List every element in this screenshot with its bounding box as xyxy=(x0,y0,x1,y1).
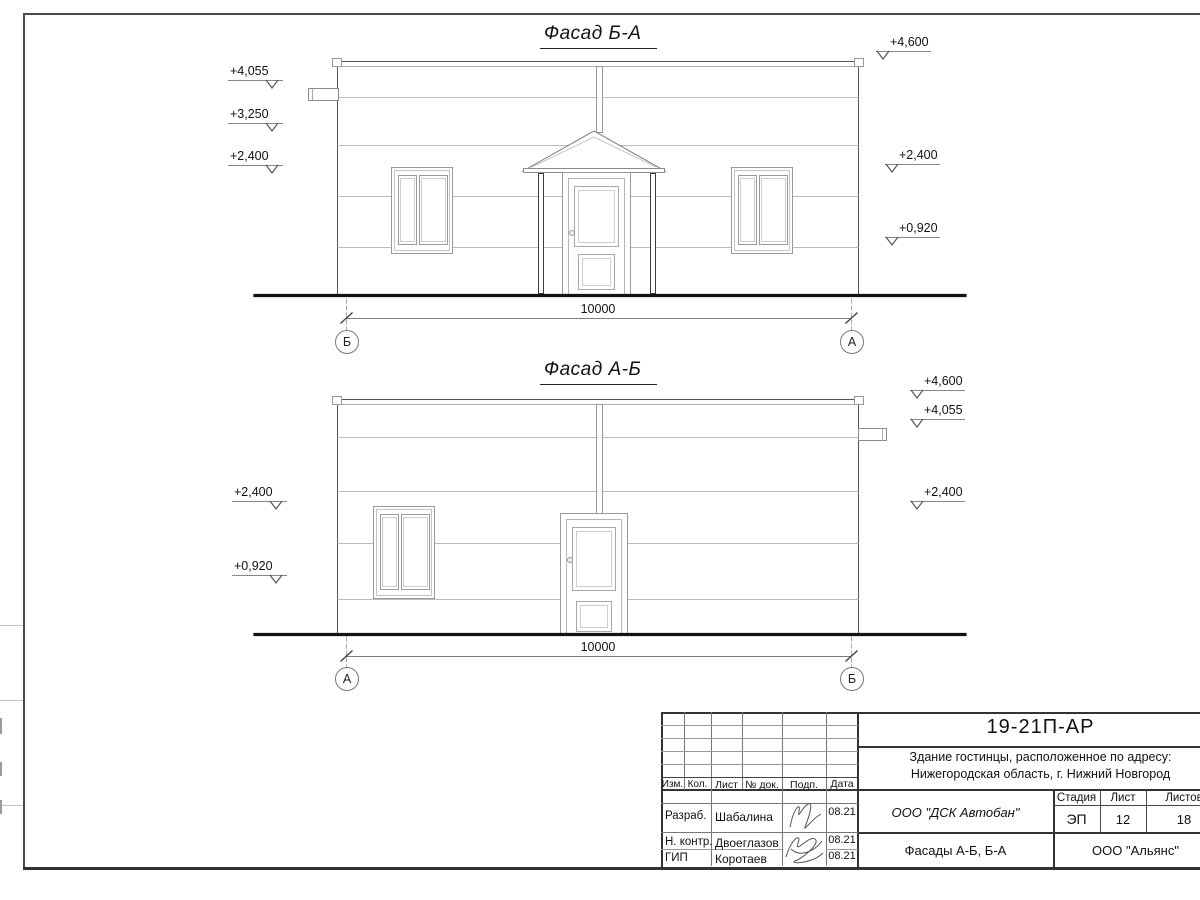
title-block-row-line xyxy=(661,832,858,833)
title-block: Изм. Кол. Лист № док. Подп. Дата Разраб.… xyxy=(0,0,1200,900)
row-role: ГИП xyxy=(665,852,688,864)
stage-value: ЭП xyxy=(1053,811,1100,827)
contractor-name: ООО "Альянс" xyxy=(1053,843,1200,858)
row-date: 08.21 xyxy=(826,806,858,818)
row-role: Н. контр. xyxy=(665,836,712,848)
row-name: Коротаев xyxy=(715,852,767,866)
row-date: 08.21 xyxy=(826,850,858,862)
col-kol-label: Кол. xyxy=(684,779,711,790)
row-role: Разраб. xyxy=(665,810,706,822)
signature-icon xyxy=(784,799,826,833)
title-block-row-line xyxy=(661,751,858,752)
col-doc-label: № док. xyxy=(742,779,782,791)
row-name: Двоеглазов xyxy=(715,836,779,850)
doc-code: 19-21П-АР xyxy=(858,716,1200,739)
drawing-title: Фасады А-Б, Б-А xyxy=(858,843,1053,858)
title-block-row-line xyxy=(661,764,858,765)
stage-label: Стадия xyxy=(1053,792,1100,804)
col-izm-label: Изм. xyxy=(661,779,684,790)
sheet-number: 12 xyxy=(1100,812,1146,827)
title-block-row-line xyxy=(661,803,858,804)
sheets-label: Листов xyxy=(1146,792,1200,804)
title-block-row-line xyxy=(661,725,858,726)
title-block-row-line xyxy=(661,738,858,739)
drawing-sheet: { "facade_top": { "title": "Фасад Б-А", … xyxy=(0,0,1200,900)
signature-icon xyxy=(782,831,828,869)
row-name: Шабалина xyxy=(715,810,773,824)
title-block-line xyxy=(858,832,1200,834)
col-list-label: Лист xyxy=(711,779,742,791)
title-block-row-line xyxy=(1053,805,1200,806)
sheet-label: Лист xyxy=(1100,792,1146,804)
company-name: ООО "ДСК Автобан" xyxy=(858,805,1053,820)
row-date: 08.21 xyxy=(826,834,858,846)
col-podp-label: Подп. xyxy=(782,779,826,791)
title-block-line xyxy=(858,746,1200,748)
sheets-total: 18 xyxy=(1146,812,1200,827)
col-data-label: Дата xyxy=(826,778,858,790)
project-name-line1: Здание гостинцы, расположенное по адресу… xyxy=(858,750,1200,764)
project-name-line2: Нижегородская область, г. Нижний Новгоро… xyxy=(858,767,1200,781)
